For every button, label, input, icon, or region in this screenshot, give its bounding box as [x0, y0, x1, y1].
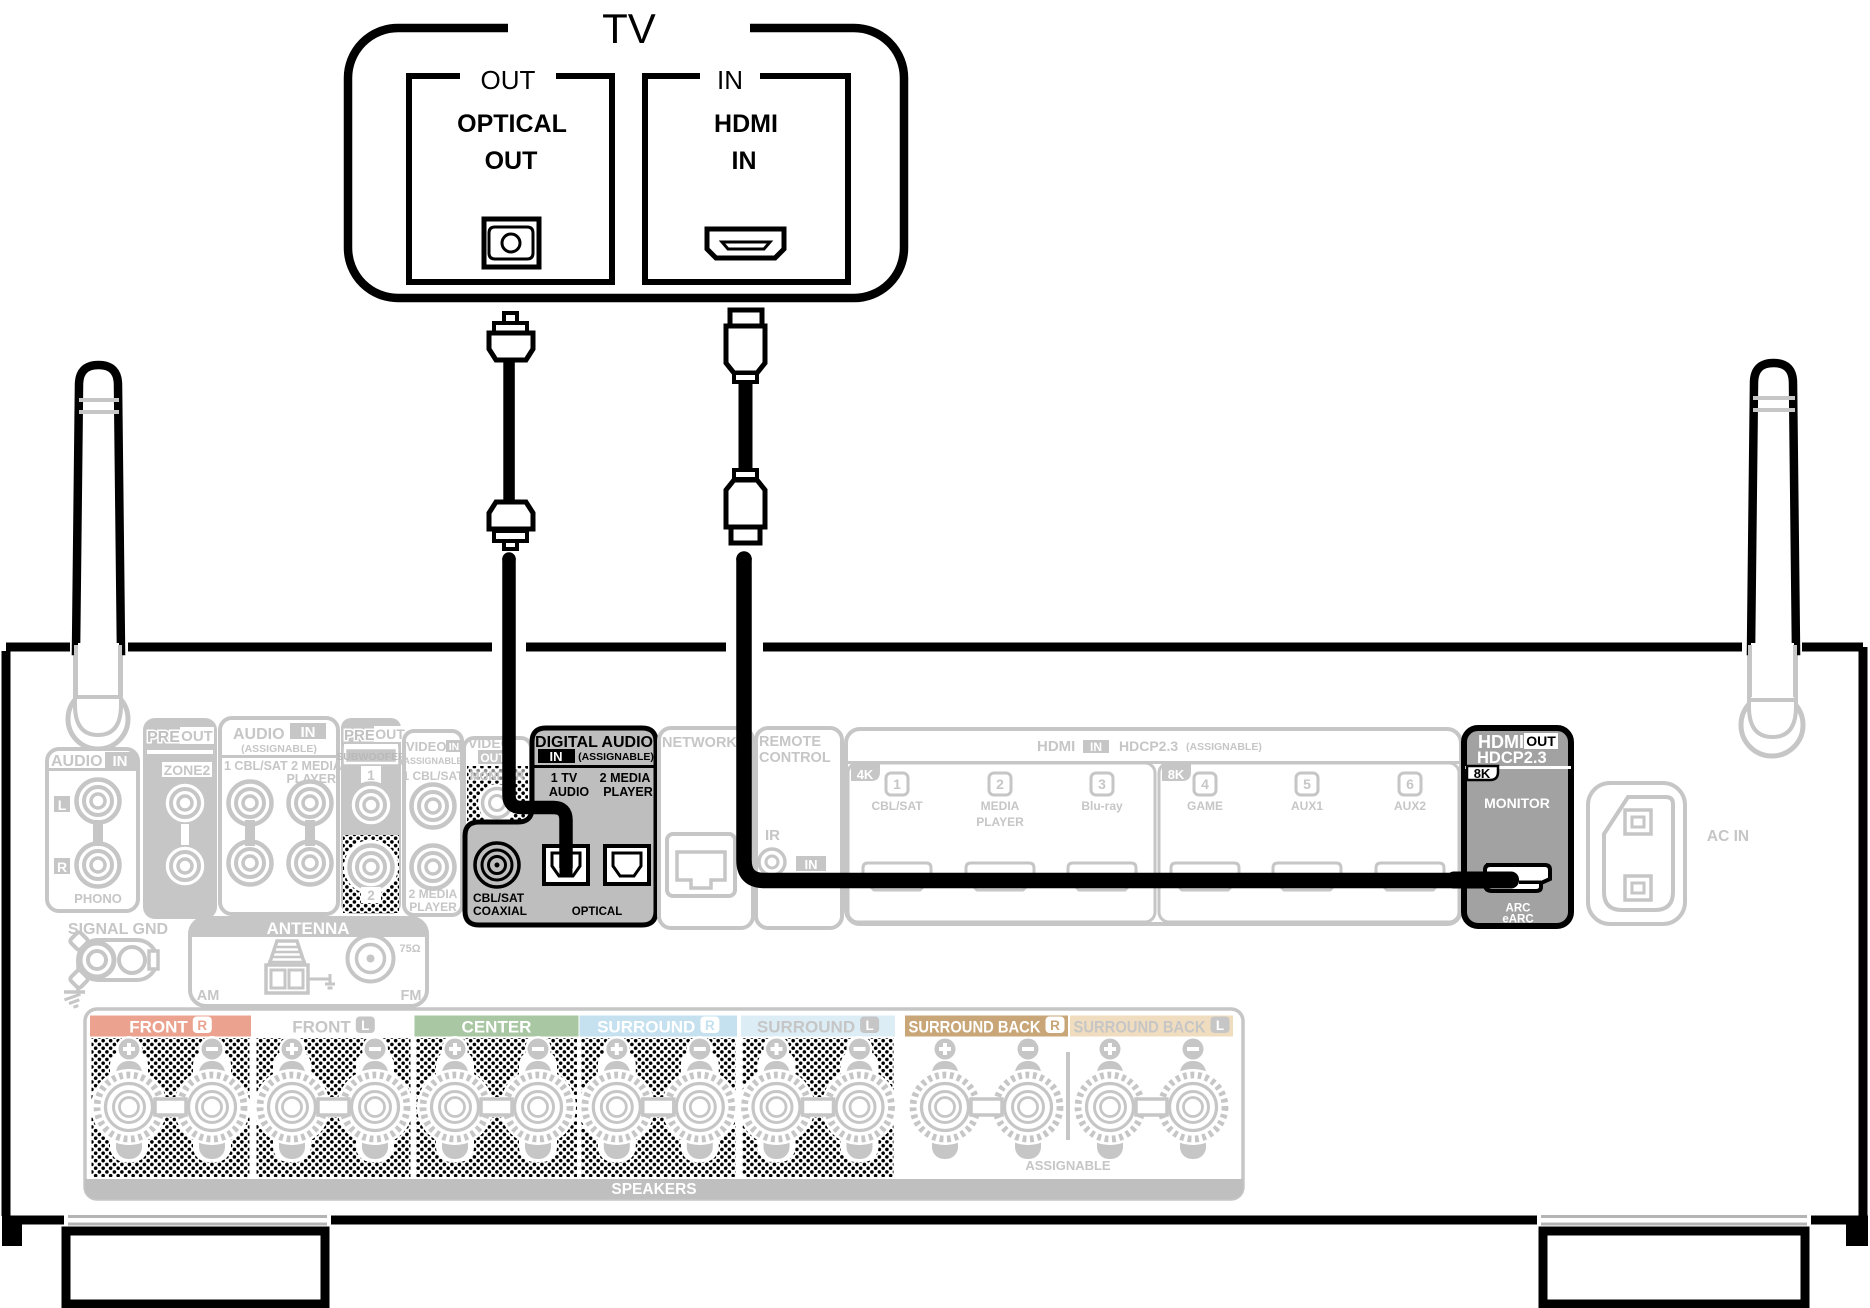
svg-text:ANTENNA: ANTENNA — [266, 919, 349, 938]
svg-text:PHONO: PHONO — [74, 891, 122, 906]
svg-text:OUT: OUT — [481, 65, 536, 95]
svg-text:OPTICAL: OPTICAL — [572, 906, 622, 918]
svg-text:SURROUND BACK: SURROUND BACK — [909, 1018, 1042, 1037]
svg-text:REMOTE: REMOTE — [759, 734, 821, 750]
svg-text:75Ω: 75Ω — [399, 943, 420, 955]
svg-text:L: L — [361, 1018, 369, 1033]
svg-text:IN: IN — [1090, 740, 1102, 754]
svg-text:OUT: OUT — [485, 147, 538, 175]
svg-text:HDCP2.3: HDCP2.3 — [1477, 749, 1547, 767]
svg-text:AC IN: AC IN — [1707, 828, 1749, 845]
svg-text:2: 2 — [996, 776, 1004, 792]
svg-text:OPTICAL: OPTICAL — [457, 110, 567, 138]
svg-text:IN: IN — [301, 724, 316, 741]
svg-text:5: 5 — [1303, 776, 1311, 792]
svg-text:SURROUND: SURROUND — [597, 1018, 695, 1037]
svg-text:1 TV: 1 TV — [551, 771, 578, 785]
svg-text:CENTER: CENTER — [462, 1018, 532, 1037]
svg-text:ZONE2: ZONE2 — [164, 762, 211, 778]
svg-text:4K: 4K — [857, 767, 874, 782]
svg-text:1: 1 — [367, 768, 375, 783]
svg-text:(ASSIGNABLE): (ASSIGNABLE) — [1186, 741, 1262, 753]
svg-text:PRE: PRE — [344, 727, 375, 744]
svg-text:PLAYER: PLAYER — [976, 815, 1024, 829]
svg-text:R: R — [197, 1018, 207, 1033]
svg-text:FRONT: FRONT — [129, 1018, 188, 1037]
svg-text:IN: IN — [113, 753, 128, 770]
svg-text:IN: IN — [717, 65, 743, 95]
svg-text:OUT: OUT — [181, 728, 213, 745]
svg-text:HDMI: HDMI — [714, 110, 778, 138]
svg-text:NETWORK: NETWORK — [662, 735, 737, 751]
svg-text:SUBWOOFER: SUBWOOFER — [336, 751, 406, 763]
svg-text:6: 6 — [1406, 776, 1414, 792]
svg-text:3: 3 — [1098, 776, 1106, 792]
svg-text:OUT: OUT — [1526, 733, 1556, 749]
svg-text:TV: TV — [602, 5, 656, 52]
svg-text:L: L — [58, 797, 67, 813]
svg-text:SPEAKERS: SPEAKERS — [611, 1181, 696, 1198]
svg-text:(ASSIGNABLE): (ASSIGNABLE) — [578, 751, 654, 763]
svg-text:PLAYER: PLAYER — [603, 785, 653, 799]
svg-text:L: L — [865, 1018, 873, 1033]
svg-text:L: L — [1216, 1018, 1224, 1033]
svg-text:R: R — [1050, 1018, 1060, 1033]
svg-text:VIDEO: VIDEO — [406, 739, 446, 754]
svg-text:IN: IN — [805, 857, 818, 872]
svg-text:AUDIO: AUDIO — [549, 785, 590, 799]
svg-text:2: 2 — [367, 888, 375, 903]
svg-text:AM: AM — [197, 988, 220, 1004]
svg-text:PLAYER: PLAYER — [409, 900, 457, 914]
svg-text:(ASSIGNABLE): (ASSIGNABLE) — [401, 756, 466, 766]
svg-text:AUX2: AUX2 — [1394, 799, 1426, 813]
svg-text:CONTROL: CONTROL — [759, 750, 831, 766]
svg-text:R: R — [705, 1018, 715, 1033]
svg-text:FRONT: FRONT — [292, 1018, 351, 1037]
svg-text:2 MEDIA: 2 MEDIA — [409, 887, 458, 901]
svg-text:(ASSIGNABLE): (ASSIGNABLE) — [241, 743, 317, 755]
svg-text:IN: IN — [550, 749, 563, 764]
svg-text:HDCP2.3: HDCP2.3 — [1119, 738, 1178, 754]
svg-text:SURROUND BACK: SURROUND BACK — [1074, 1018, 1207, 1037]
svg-text:R: R — [57, 859, 67, 875]
svg-text:ASSIGNABLE: ASSIGNABLE — [1025, 1158, 1111, 1173]
svg-text:MEDIA: MEDIA — [981, 799, 1020, 813]
svg-text:SURROUND: SURROUND — [757, 1018, 855, 1037]
svg-text:1 CBL/SAT: 1 CBL/SAT — [402, 769, 464, 783]
svg-text:AUDIO: AUDIO — [233, 726, 285, 743]
svg-text:COAXIAL: COAXIAL — [473, 904, 527, 918]
svg-text:CBL/SAT: CBL/SAT — [473, 891, 525, 905]
svg-text:MONITOR: MONITOR — [1484, 795, 1550, 811]
svg-text:AUX1: AUX1 — [1291, 799, 1323, 813]
svg-text:PRE: PRE — [147, 729, 180, 746]
svg-text:1: 1 — [893, 776, 901, 792]
svg-text:FM: FM — [401, 988, 422, 1004]
svg-text:4: 4 — [1201, 776, 1209, 792]
svg-text:eARC: eARC — [1502, 914, 1533, 926]
svg-text:2 MEDIA: 2 MEDIA — [600, 771, 651, 785]
svg-text:CBL/SAT: CBL/SAT — [871, 799, 923, 813]
svg-text:8K: 8K — [1168, 767, 1185, 782]
svg-text:IN: IN — [732, 147, 757, 175]
svg-text:MONITOR: MONITOR — [470, 771, 525, 783]
svg-text:IR: IR — [765, 827, 780, 844]
svg-text:Blu-ray: Blu-ray — [1081, 799, 1123, 813]
svg-text:8K: 8K — [1474, 766, 1491, 781]
svg-text:GAME: GAME — [1187, 799, 1223, 813]
svg-text:1 CBL/SAT 2 MEDIA: 1 CBL/SAT 2 MEDIA — [224, 759, 342, 773]
svg-text:AUDIO: AUDIO — [51, 753, 103, 770]
svg-text:HDMI: HDMI — [1037, 738, 1075, 755]
svg-text:IN: IN — [449, 741, 460, 753]
svg-text:OUT: OUT — [375, 726, 405, 742]
